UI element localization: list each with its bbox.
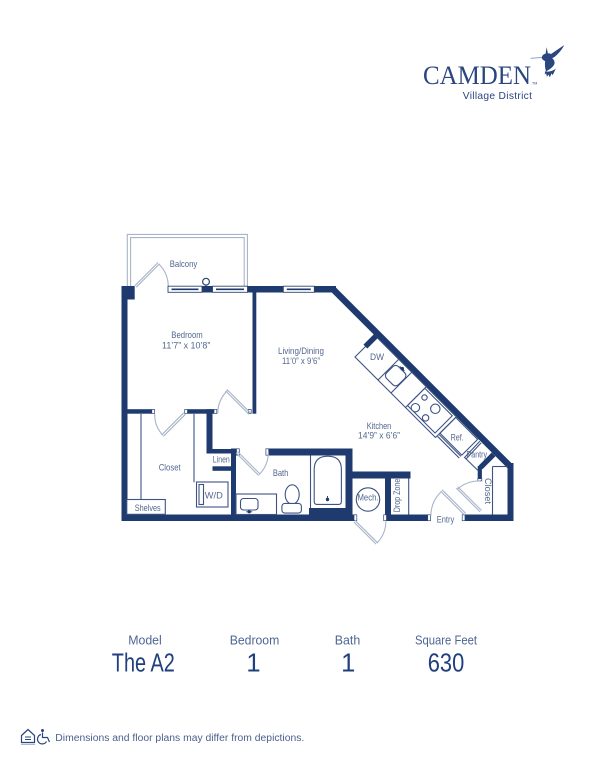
svg-text:1: 1 — [246, 650, 260, 678]
svg-text:Drop Zone: Drop Zone — [392, 479, 402, 513]
svg-text:Linen: Linen — [213, 455, 230, 465]
svg-text:W/D: W/D — [205, 490, 223, 501]
svg-text:Ref.: Ref. — [451, 432, 464, 443]
svg-text:The A2: The A2 — [112, 650, 175, 678]
svg-text:Balcony: Balcony — [170, 258, 198, 269]
svg-text:CAMDEN: CAMDEN — [423, 60, 531, 90]
svg-text:DW: DW — [370, 351, 384, 362]
svg-text:Shelves: Shelves — [135, 503, 161, 513]
svg-text:Bath: Bath — [335, 633, 361, 648]
svg-text:11’0” x 9’6”: 11’0” x 9’6” — [282, 355, 320, 366]
svg-text:Mech.: Mech. — [358, 492, 379, 503]
svg-text:Closet: Closet — [483, 478, 493, 505]
svg-text:Bedroom: Bedroom — [230, 633, 280, 648]
svg-text:14’9” x 6’6”: 14’9” x 6’6” — [358, 429, 400, 440]
svg-text:Closet: Closet — [159, 461, 181, 472]
svg-text:Model: Model — [128, 633, 162, 648]
svg-text:Dimensions and floor plans may: Dimensions and floor plans may differ fr… — [55, 733, 304, 744]
svg-text:1: 1 — [341, 650, 355, 678]
svg-text:Pantry: Pantry — [467, 449, 488, 460]
svg-text:Square Feet: Square Feet — [415, 633, 477, 648]
svg-text:630: 630 — [428, 650, 465, 678]
svg-text:Bath: Bath — [273, 467, 289, 478]
svg-text:Village District: Village District — [463, 91, 533, 102]
svg-text:11’7” x 10’8”: 11’7” x 10’8” — [162, 339, 210, 350]
svg-text:TM: TM — [532, 82, 537, 86]
svg-text:Entry: Entry — [437, 514, 455, 525]
